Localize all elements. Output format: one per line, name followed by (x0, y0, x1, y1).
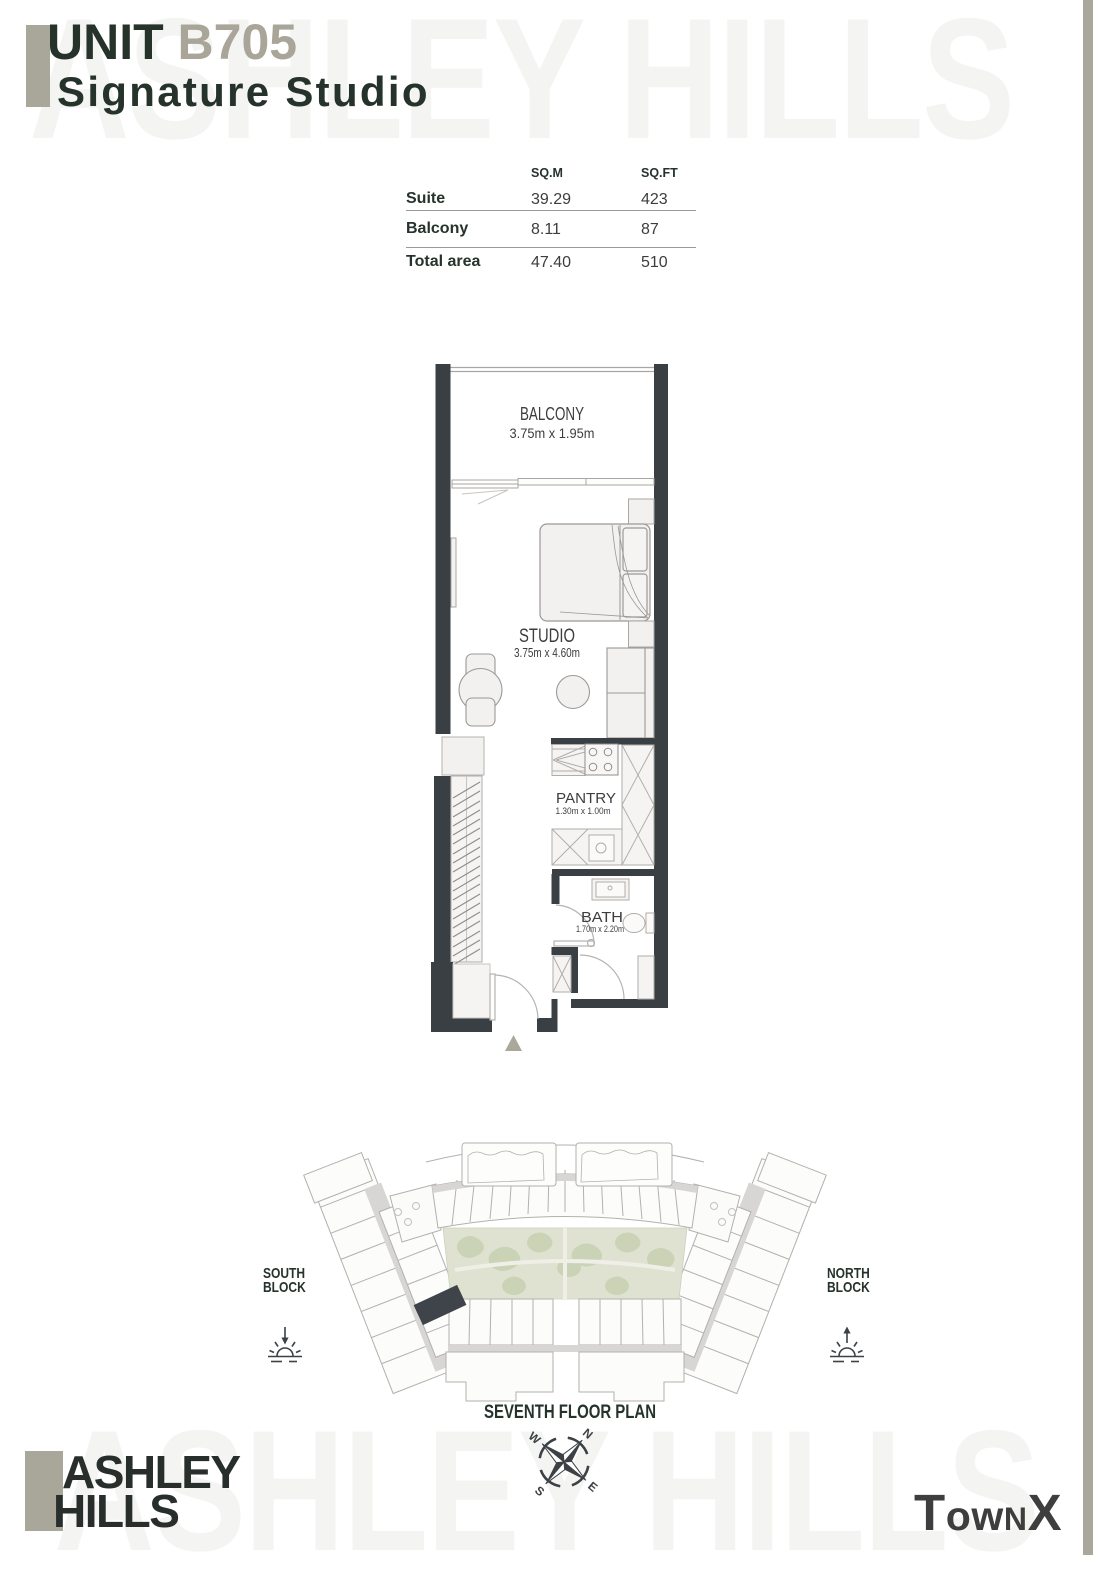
svg-text:BLOCK: BLOCK (827, 1279, 870, 1295)
svg-text:SEVENTH FLOOR PLAN: SEVENTH FLOOR PLAN (484, 1401, 656, 1423)
svg-text:S: S (532, 1483, 547, 1499)
svg-text:N: N (580, 1426, 596, 1442)
svg-text:E: E (585, 1479, 600, 1495)
svg-text:BLOCK: BLOCK (263, 1279, 306, 1295)
svg-text:W: W (526, 1429, 544, 1447)
